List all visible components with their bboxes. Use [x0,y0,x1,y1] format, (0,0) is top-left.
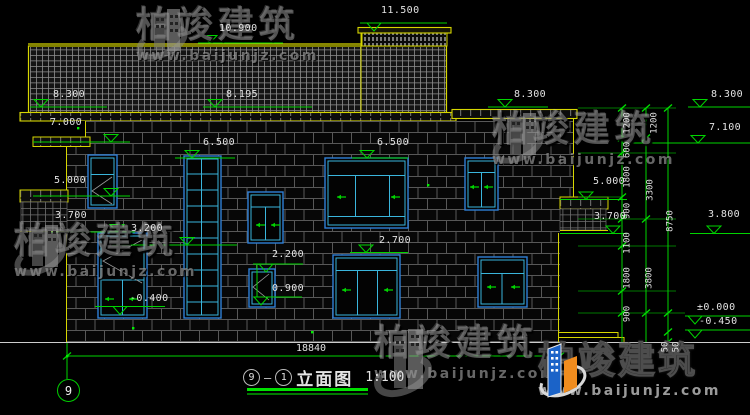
vertical-dim-label: 8750 [667,210,676,232]
axis-bubble-start: 9 [243,369,260,386]
window-second-floor-center [325,158,408,228]
elevation-label: 11.500 [381,6,420,16]
elevation-label: 6.500 [377,138,409,148]
vertical-dim-label: 3300 [647,179,656,201]
axis-bubble-end: 1 [275,369,292,386]
elevation-label: 3.700 [594,212,626,222]
title-underline [247,388,368,391]
roof-tower [358,28,451,47]
elevation-label: 3.800 [708,210,740,220]
vertical-dim-label: 1200 [624,112,633,134]
vertical-dim-label: 1800 [624,267,633,289]
elevation-label: ±0.000 [697,303,736,313]
window-upper-left [88,155,117,208]
window-mid-small-left [248,192,283,243]
elevation-label: 5.000 [54,176,86,186]
cad-elevation-canvas: 柏竣建筑 www.baijunjz.com 柏竣建筑 www.baijunjz.… [0,0,750,415]
vertical-dim-label: 1200 [651,112,660,134]
vertical-dim-label: 1100 [624,232,633,254]
overall-width-dim: 18840 [281,344,341,354]
elevation-label: 2.200 [272,250,304,260]
elevation-label: 3.700 [55,211,87,221]
title-block: 9 — 1 立面图 1:100 [243,365,404,390]
elevation-label: -0.450 [699,317,738,327]
elevation-label: 8.195 [226,90,258,100]
door-ground-left [98,233,147,318]
title-underline-shadow [247,393,368,395]
elevation-label: 5.000 [593,177,625,187]
elevation-label: 8.300 [711,90,743,100]
elevation-label: -0.400 [130,294,169,304]
elevation-label: 8.300 [53,90,85,100]
drawing-scale: 1:100 [365,370,404,385]
vertical-dim-label: 900 [624,203,633,219]
elevation-drawing [0,0,750,415]
vertical-dim-label: 3800 [646,267,655,289]
vertical-dim-label: 600 [624,142,633,158]
vertical-dim-label: 1800 [624,166,633,188]
vertical-dim-label: 900 [624,306,633,322]
vertical-dim-label: 50 [662,342,671,353]
window-ground-right [478,257,527,307]
vertical-dim-label: 50 [673,342,682,353]
elevation-label: 6.500 [203,138,235,148]
axis-separator: — [264,371,271,385]
elevation-label: 7.000 [50,118,82,128]
drawing-title: 立面图 [296,365,353,390]
window-second-floor-right [465,158,498,210]
window-ground-center [333,255,400,318]
elevation-label: 8.300 [514,90,546,100]
elevation-label: 10.900 [219,24,258,34]
entry-steps [558,333,624,343]
elevation-label: 7.100 [709,123,741,133]
elevation-label: 2.700 [379,236,411,246]
elevation-label: 0.900 [272,284,304,294]
main-eave [20,113,456,122]
grid-axis-bubble: 9 [57,379,80,402]
elevation-label: 3.200 [131,224,163,234]
right-eave [452,110,577,119]
